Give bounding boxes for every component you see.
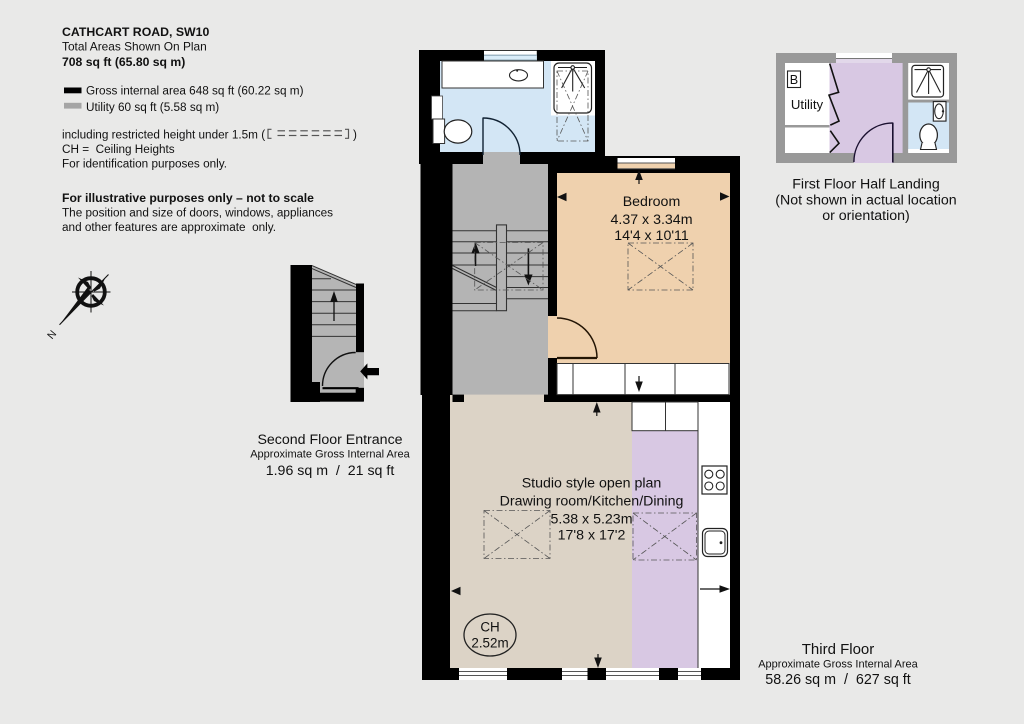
svg-text:5.38 x 5.23m: 5.38 x 5.23m xyxy=(550,512,632,528)
svg-text:(Not shown in actual location: (Not shown in actual location xyxy=(775,193,956,209)
svg-text:Studio style open plan: Studio style open plan xyxy=(522,476,662,492)
svg-text:4.37 x 3.34m: 4.37 x 3.34m xyxy=(610,212,692,228)
svg-text:): ) xyxy=(353,129,357,142)
svg-text:Gross internal area 648 sq ft: Gross internal area 648 sq ft (60.22 sq … xyxy=(86,85,304,98)
svg-text:Bedroom: Bedroom xyxy=(623,194,681,210)
svg-text:708 sq ft (65.80 sq m): 708 sq ft (65.80 sq m) xyxy=(62,55,185,69)
svg-text:Total Areas Shown On Plan: Total Areas Shown On Plan xyxy=(62,40,207,54)
svg-text:Third Floor: Third Floor xyxy=(802,641,875,658)
svg-text:14'4 x 10'11: 14'4 x 10'11 xyxy=(614,228,689,244)
svg-text:First Floor Half Landing: First Floor Half Landing xyxy=(792,177,939,193)
svg-text:or orientation): or orientation) xyxy=(822,208,910,224)
svg-text:58.26 sq m / 627 sq ft: 58.26 sq m / 627 sq ft xyxy=(765,672,910,688)
svg-text:Utility 60 sq ft (5.58 sq m): Utility 60 sq ft (5.58 sq m) xyxy=(86,101,219,114)
svg-text:1.96 sq m / 21 sq ft: 1.96 sq m / 21 sq ft xyxy=(266,463,395,479)
svg-text:2.52m: 2.52m xyxy=(471,636,508,651)
svg-text:Second Floor Entrance: Second Floor Entrance xyxy=(257,432,402,448)
svg-text:Approximate Gross Internal Are: Approximate Gross Internal Area xyxy=(758,659,918,671)
svg-text:B: B xyxy=(790,73,798,87)
svg-text:17'8 x 17'2: 17'8 x 17'2 xyxy=(558,528,626,544)
svg-text:CH: CH xyxy=(480,620,499,635)
svg-text:For illustrative purposes only: For illustrative purposes only – not to … xyxy=(62,191,314,205)
svg-text:For identification purposes on: For identification purposes only. xyxy=(62,158,227,171)
svg-text:and other features are approxi: and other features are approximate only. xyxy=(62,221,276,234)
svg-text:CATHCART ROAD, SW10: CATHCART ROAD, SW10 xyxy=(62,25,209,39)
svg-text:Approximate Gross Internal Are: Approximate Gross Internal Area xyxy=(250,449,410,461)
svg-text:Utility: Utility xyxy=(791,97,824,112)
svg-text:The position and size of doors: The position and size of doors, windows,… xyxy=(62,207,333,220)
svg-text:CH = Ceiling Heights: CH = Ceiling Heights xyxy=(62,143,175,156)
svg-text:including restricted height un: including restricted height under 1.5m ( xyxy=(62,129,265,142)
svg-text:Drawing room/Kitchen/Dining: Drawing room/Kitchen/Dining xyxy=(500,494,684,510)
